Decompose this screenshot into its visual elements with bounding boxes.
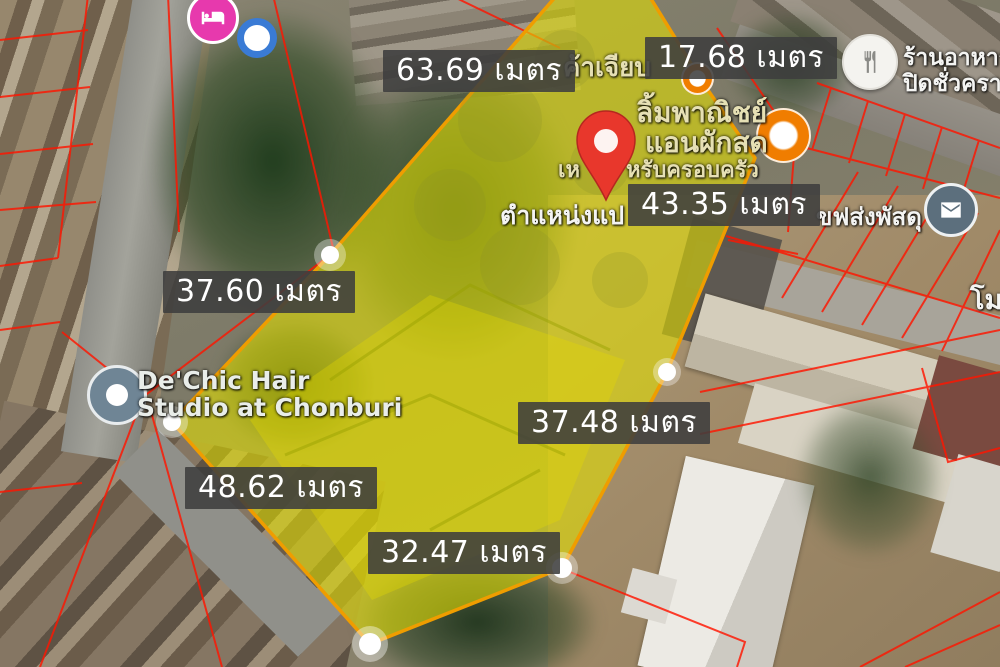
measurement-label-2: 17.68 เมตร	[645, 37, 837, 79]
poi-dot-inner	[106, 384, 128, 406]
measurement-label-3: 43.35 เมตร	[628, 184, 820, 226]
measurement-label-7: 32.47 เมตร	[368, 532, 560, 574]
fork-knife-glyph	[857, 49, 883, 75]
envelope-glyph	[938, 197, 964, 223]
produce-shop-label-line3-right[interactable]: หรับครอบครัว	[626, 152, 759, 187]
measurement-label-4: 37.60 เมตร	[163, 271, 355, 313]
plot-vertex[interactable]	[352, 626, 388, 662]
bed-glyph	[198, 3, 228, 33]
hair-studio-label-line2[interactable]: Studio at Chonburi	[137, 393, 402, 422]
parcel-lines-right-lower	[700, 330, 1000, 462]
parcel-lines-left	[0, 0, 179, 330]
mail-icon[interactable]	[924, 183, 978, 237]
measurement-label-6: 48.62 เมตร	[185, 467, 377, 509]
plot-vertex[interactable]	[314, 239, 346, 271]
restaurant-icon[interactable]	[842, 34, 898, 90]
hair-studio-label-line1[interactable]: De'Chic Hair	[137, 366, 309, 395]
map-canvas: ร้านอาหาร ปิดชั่วคราว ค้าเจียบ ลิ้มพาณิช…	[0, 0, 1000, 667]
shop-top-label[interactable]: ค้าเจียบ	[563, 47, 651, 88]
measurement-label-1: 63.69 เมตร	[383, 50, 575, 92]
restaurant-label-line2[interactable]: ปิดชั่วคราว	[903, 66, 1000, 102]
poi-blue-dot-icon[interactable]	[237, 18, 277, 58]
pin-body	[577, 111, 635, 200]
plot-vertex[interactable]	[653, 358, 681, 386]
partial-poi-label[interactable]: โม	[970, 278, 1000, 321]
measurement-label-5: 37.48 เมตร	[518, 402, 710, 444]
parcel-service-label[interactable]: ขฟส่งพัสดุ	[816, 197, 922, 236]
parcel-lines-bottom-right	[565, 570, 1000, 667]
lodging-icon[interactable]	[187, 0, 239, 44]
pin-hole	[594, 129, 618, 153]
